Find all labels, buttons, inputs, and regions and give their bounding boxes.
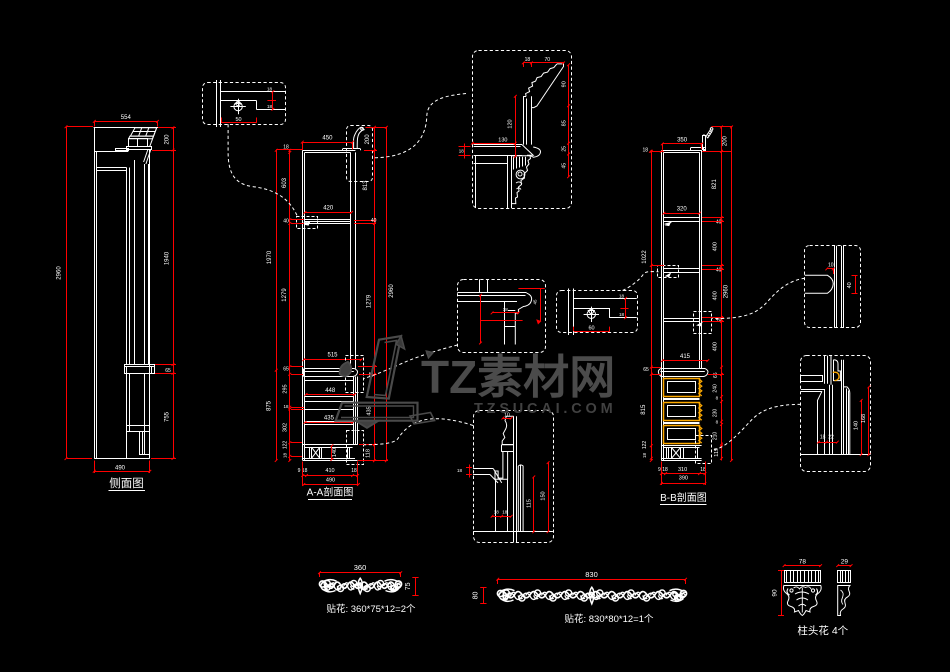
svg-text:210: 210	[713, 432, 719, 441]
svg-text:65: 65	[643, 367, 649, 373]
svg-text:75: 75	[405, 582, 412, 590]
svg-text:22: 22	[828, 435, 834, 441]
svg-text:115: 115	[526, 499, 532, 508]
svg-text:1279: 1279	[366, 294, 372, 308]
svg-text:302: 302	[282, 423, 288, 432]
svg-text:2960: 2960	[724, 284, 730, 298]
svg-text:18: 18	[267, 87, 273, 92]
svg-text:45: 45	[561, 163, 567, 169]
svg-text:1970: 1970	[267, 250, 273, 264]
svg-text:240: 240	[713, 384, 719, 393]
svg-text:554: 554	[121, 115, 132, 121]
svg-text:813: 813	[363, 180, 369, 191]
svg-text:360: 360	[354, 563, 367, 572]
svg-text:150: 150	[541, 491, 547, 500]
svg-text:40: 40	[283, 219, 289, 225]
svg-text:65: 65	[165, 368, 171, 374]
svg-text:295: 295	[282, 384, 288, 393]
svg-text:140: 140	[853, 421, 859, 430]
svg-text:18: 18	[503, 307, 509, 312]
svg-text:18: 18	[351, 468, 357, 474]
svg-text:390: 390	[679, 476, 688, 482]
svg-text:350: 350	[677, 137, 688, 143]
svg-text:40: 40	[716, 268, 722, 274]
svg-text:400: 400	[713, 342, 719, 351]
svg-text:18: 18	[643, 148, 649, 154]
svg-text:A-A剖面图: A-A剖面图	[307, 486, 354, 499]
svg-text:310: 310	[678, 467, 687, 473]
svg-text:2960: 2960	[389, 284, 395, 298]
svg-text:18: 18	[820, 435, 826, 441]
svg-text:18: 18	[283, 145, 289, 151]
svg-text:TZ素材网: TZ素材网	[421, 351, 615, 403]
svg-text:435: 435	[367, 406, 373, 415]
svg-text:400: 400	[713, 242, 719, 251]
svg-text:18: 18	[457, 468, 463, 473]
svg-text:18: 18	[619, 293, 625, 298]
svg-text:415: 415	[680, 354, 691, 360]
svg-text:65: 65	[283, 367, 289, 373]
svg-text:118: 118	[366, 449, 372, 458]
svg-text:40: 40	[371, 218, 377, 224]
svg-text:78: 78	[799, 558, 807, 565]
svg-text:50: 50	[235, 117, 241, 123]
svg-text:755: 755	[165, 411, 171, 422]
svg-text:80: 80	[473, 592, 480, 600]
svg-text:410: 410	[325, 468, 334, 474]
svg-text:821: 821	[712, 179, 718, 190]
svg-text:230: 230	[713, 409, 719, 418]
svg-text:TZSUCAI.COM: TZSUCAI.COM	[474, 401, 617, 417]
svg-text:70: 70	[545, 57, 551, 63]
svg-text:40: 40	[847, 282, 853, 288]
svg-text:45: 45	[533, 299, 538, 305]
svg-text:65: 65	[713, 372, 719, 378]
svg-text:450: 450	[322, 136, 333, 142]
svg-text:122: 122	[642, 441, 648, 450]
svg-text:490: 490	[115, 465, 126, 471]
svg-text:18: 18	[494, 510, 500, 515]
svg-text:875: 875	[267, 400, 273, 411]
svg-text:603: 603	[282, 177, 288, 188]
svg-text:2960: 2960	[57, 266, 63, 280]
svg-text:490: 490	[326, 478, 335, 484]
svg-text:侧面图: 侧面图	[109, 477, 144, 490]
svg-text:515: 515	[327, 352, 338, 358]
svg-text:90: 90	[561, 81, 567, 87]
svg-text:122: 122	[282, 441, 288, 450]
svg-text:448: 448	[325, 388, 336, 394]
svg-text:18: 18	[283, 404, 289, 409]
svg-text:40: 40	[716, 220, 722, 226]
svg-text:420: 420	[323, 206, 334, 212]
svg-text:10: 10	[828, 263, 834, 269]
svg-text:18: 18	[525, 57, 531, 63]
svg-text:200: 200	[165, 134, 171, 145]
svg-text:1022: 1022	[642, 250, 648, 264]
svg-text:18: 18	[619, 312, 625, 317]
svg-text:25: 25	[561, 146, 567, 152]
svg-text:320: 320	[677, 207, 688, 213]
svg-text:120: 120	[508, 119, 514, 128]
svg-text:168: 168	[861, 414, 867, 423]
svg-text:B-B剖面图: B-B剖面图	[660, 491, 707, 504]
svg-text:85: 85	[561, 120, 567, 126]
svg-text:18: 18	[642, 453, 647, 459]
svg-text:柱头花 4个: 柱头花 4个	[797, 624, 848, 637]
svg-text:435: 435	[324, 416, 335, 422]
svg-text:830: 830	[585, 570, 598, 579]
svg-text:18: 18	[282, 453, 287, 459]
svg-text:200: 200	[365, 134, 371, 145]
svg-text:贴花: 360*75*12=2个: 贴花: 360*75*12=2个	[327, 603, 416, 615]
svg-text:1940: 1940	[165, 251, 171, 265]
svg-text:1279: 1279	[282, 288, 288, 302]
svg-text:18: 18	[267, 104, 273, 109]
svg-text:400: 400	[713, 291, 719, 300]
svg-text:815: 815	[641, 404, 647, 415]
svg-text:200: 200	[723, 135, 729, 146]
svg-text:130: 130	[498, 138, 507, 144]
svg-text:29: 29	[841, 558, 849, 565]
svg-text:18: 18	[459, 149, 465, 154]
svg-text:140: 140	[332, 448, 338, 457]
svg-text:60: 60	[588, 326, 594, 332]
svg-text:贴花: 830*80*12=1个: 贴花: 830*80*12=1个	[565, 613, 654, 625]
svg-text:18: 18	[502, 510, 508, 515]
svg-text:90: 90	[771, 589, 778, 597]
